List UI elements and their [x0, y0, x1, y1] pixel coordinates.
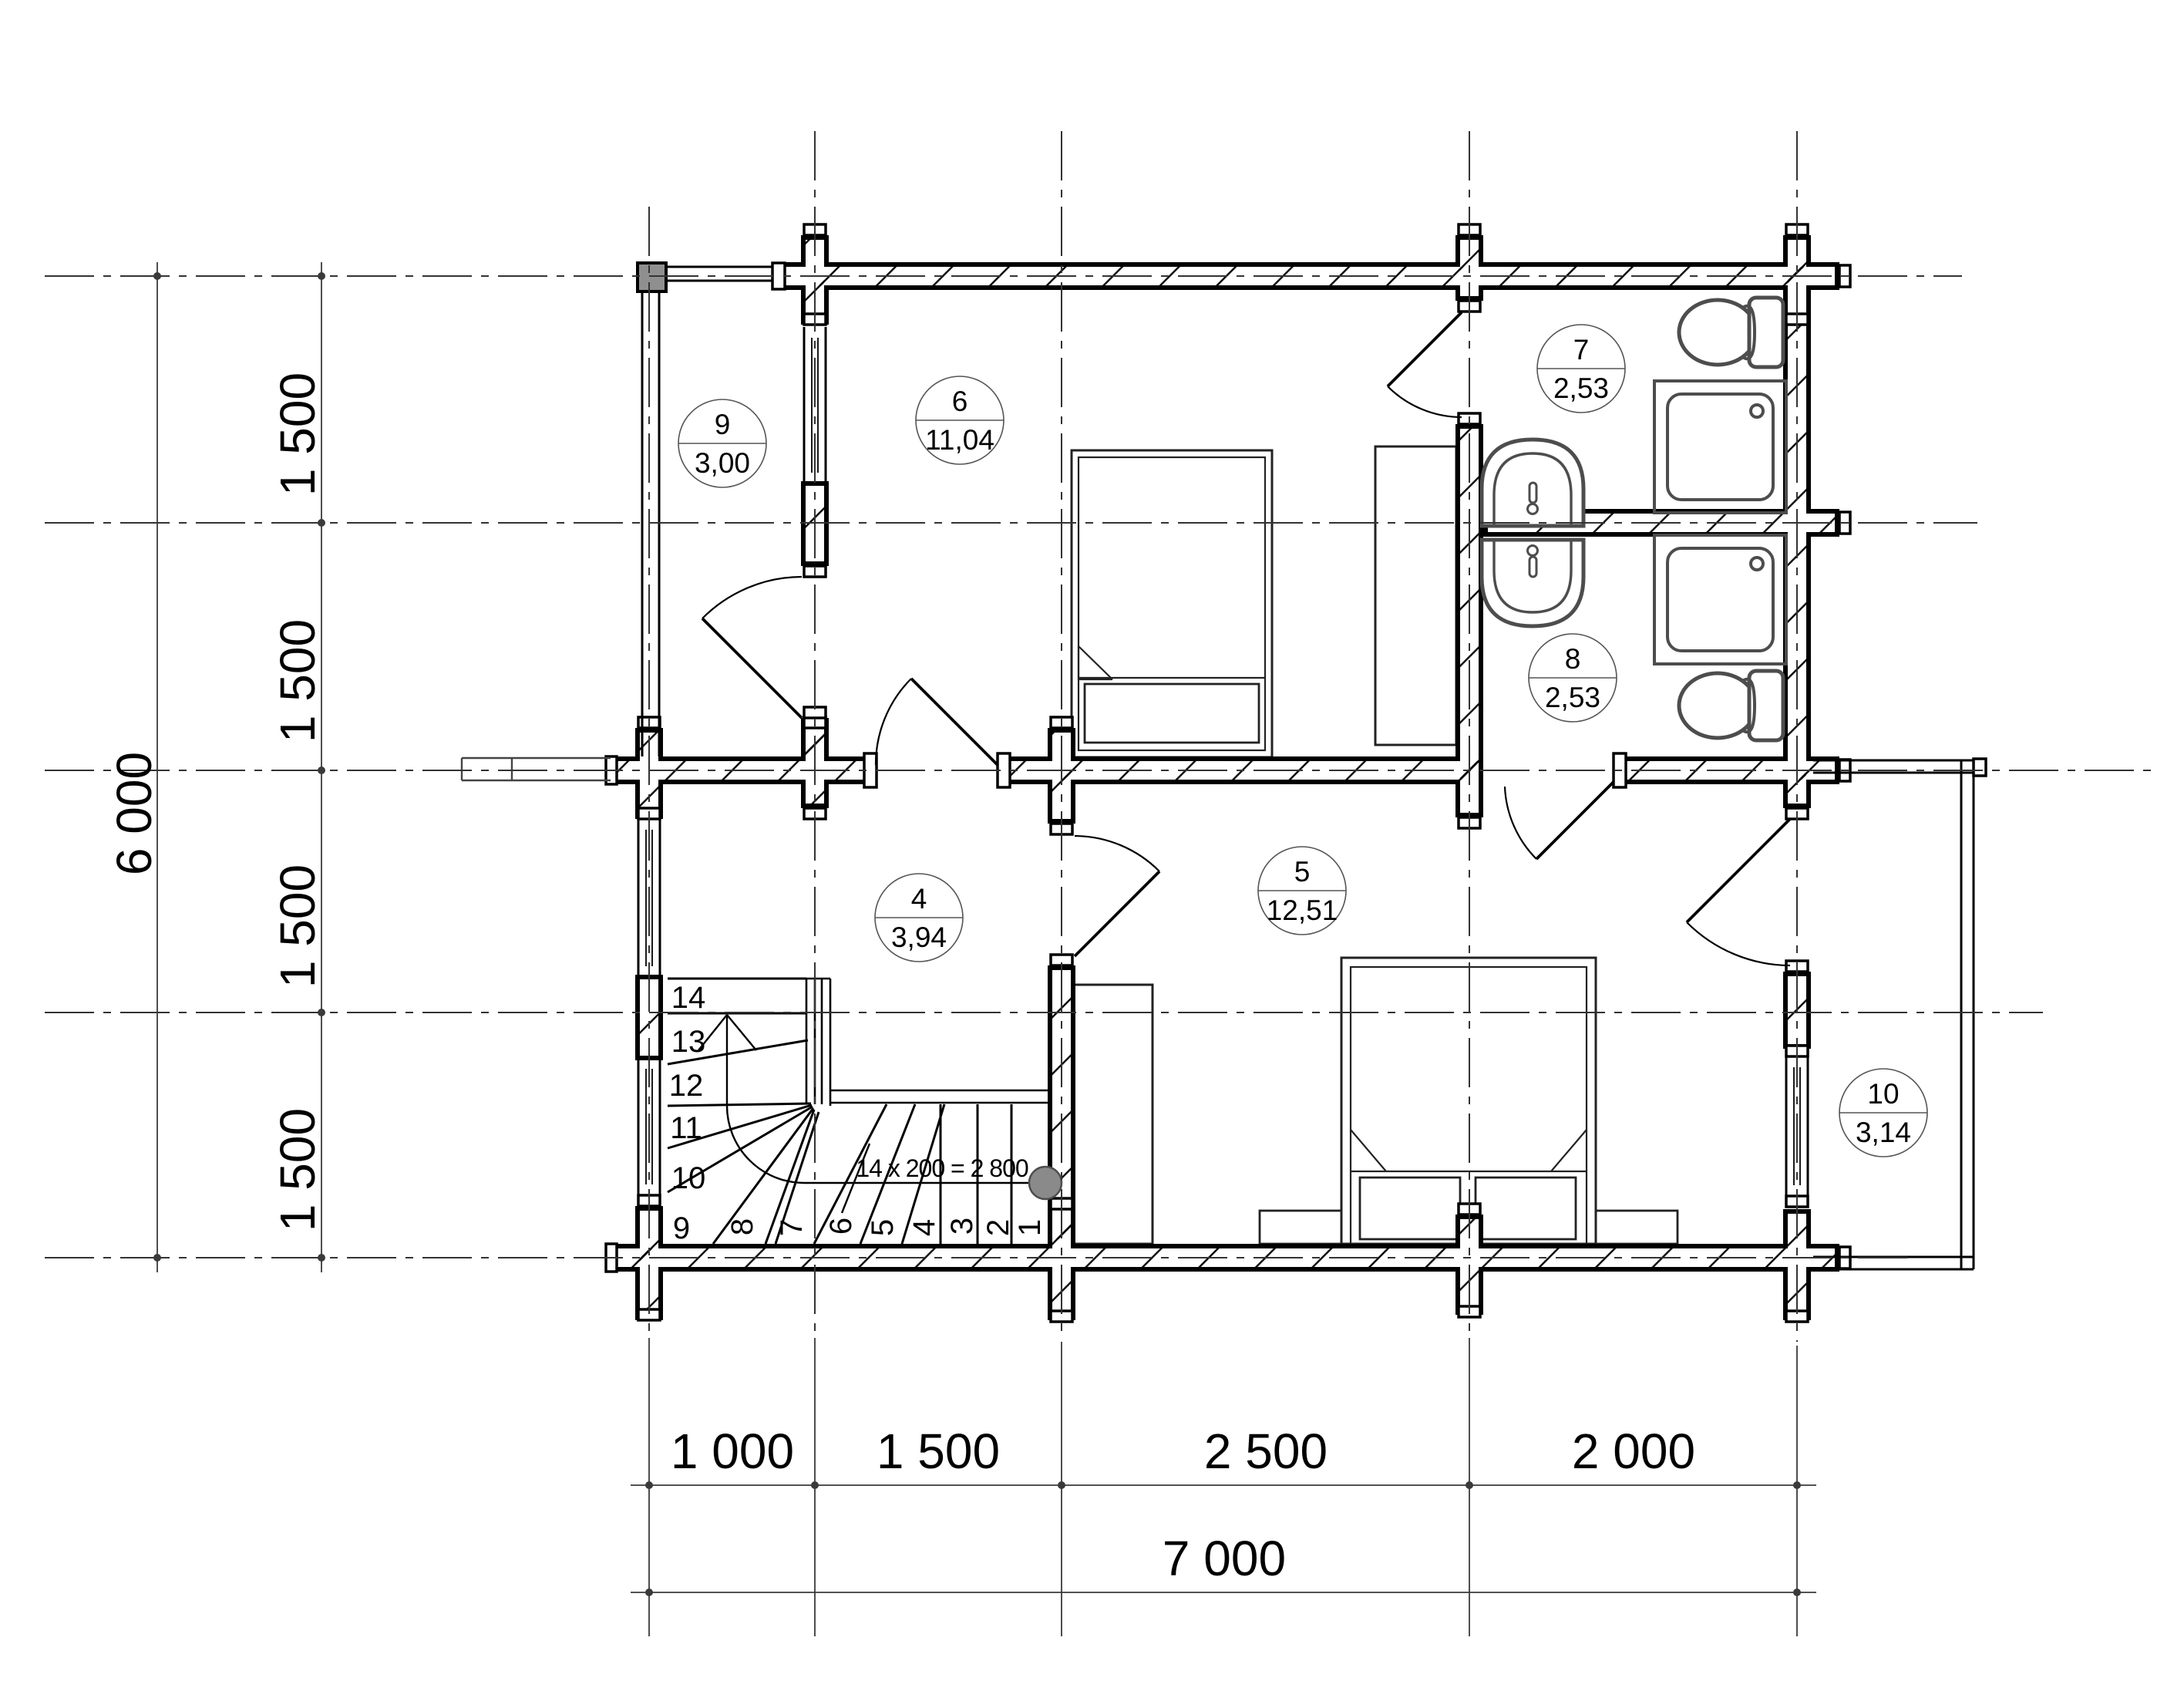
svg-text:14: 14	[671, 981, 706, 1015]
svg-text:4: 4	[911, 883, 927, 915]
svg-text:12,51: 12,51	[1267, 895, 1338, 926]
svg-text:5: 5	[1294, 856, 1311, 888]
svg-text:13: 13	[671, 1025, 706, 1059]
svg-text:10: 10	[671, 1161, 706, 1195]
svg-text:7: 7	[1573, 334, 1590, 366]
svg-text:2 000: 2 000	[1572, 1424, 1695, 1479]
svg-text:2,53: 2,53	[1553, 372, 1609, 404]
svg-text:6: 6	[824, 1218, 858, 1235]
svg-text:10: 10	[1867, 1078, 1899, 1110]
svg-text:11,04: 11,04	[925, 424, 994, 456]
svg-text:2,53: 2,53	[1545, 682, 1600, 713]
svg-text:9: 9	[673, 1211, 690, 1245]
svg-text:12: 12	[669, 1069, 704, 1103]
svg-text:5: 5	[866, 1219, 900, 1236]
svg-text:7 000: 7 000	[1163, 1531, 1286, 1586]
svg-text:2: 2	[981, 1219, 1015, 1236]
svg-text:11: 11	[670, 1111, 702, 1145]
svg-text:8: 8	[1565, 643, 1581, 675]
svg-text:8: 8	[725, 1218, 759, 1235]
svg-text:14 x 200 = 2 800: 14 x 200 = 2 800	[856, 1154, 1028, 1182]
svg-text:1 500: 1 500	[877, 1424, 1000, 1479]
svg-text:3,00: 3,00	[695, 447, 750, 479]
svg-text:3,94: 3,94	[891, 921, 947, 953]
svg-text:1 500: 1 500	[270, 864, 325, 988]
svg-text:1 500: 1 500	[270, 619, 325, 743]
svg-text:6: 6	[952, 386, 968, 417]
svg-text:1 500: 1 500	[270, 1108, 325, 1231]
svg-text:6 000: 6 000	[106, 752, 162, 875]
svg-text:7: 7	[775, 1219, 809, 1236]
svg-text:3: 3	[945, 1218, 979, 1235]
svg-text:4: 4	[907, 1219, 941, 1236]
svg-text:1 500: 1 500	[270, 372, 325, 496]
svg-text:1 000: 1 000	[671, 1424, 794, 1479]
svg-text:9: 9	[715, 409, 731, 440]
svg-text:1: 1	[1013, 1219, 1047, 1236]
svg-text:3,14: 3,14	[1856, 1117, 1911, 1148]
svg-text:2 500: 2 500	[1204, 1424, 1328, 1479]
